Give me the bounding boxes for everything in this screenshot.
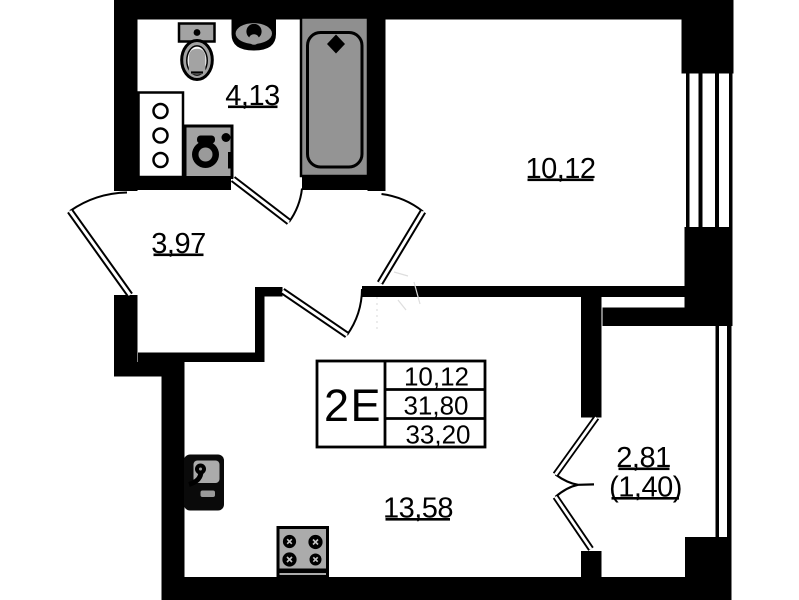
svg-text:10,12: 10,12 [404, 362, 469, 392]
svg-text:33,20: 33,20 [405, 420, 470, 450]
svg-text:31,80: 31,80 [403, 391, 468, 421]
svg-text:2E: 2E [324, 380, 382, 431]
